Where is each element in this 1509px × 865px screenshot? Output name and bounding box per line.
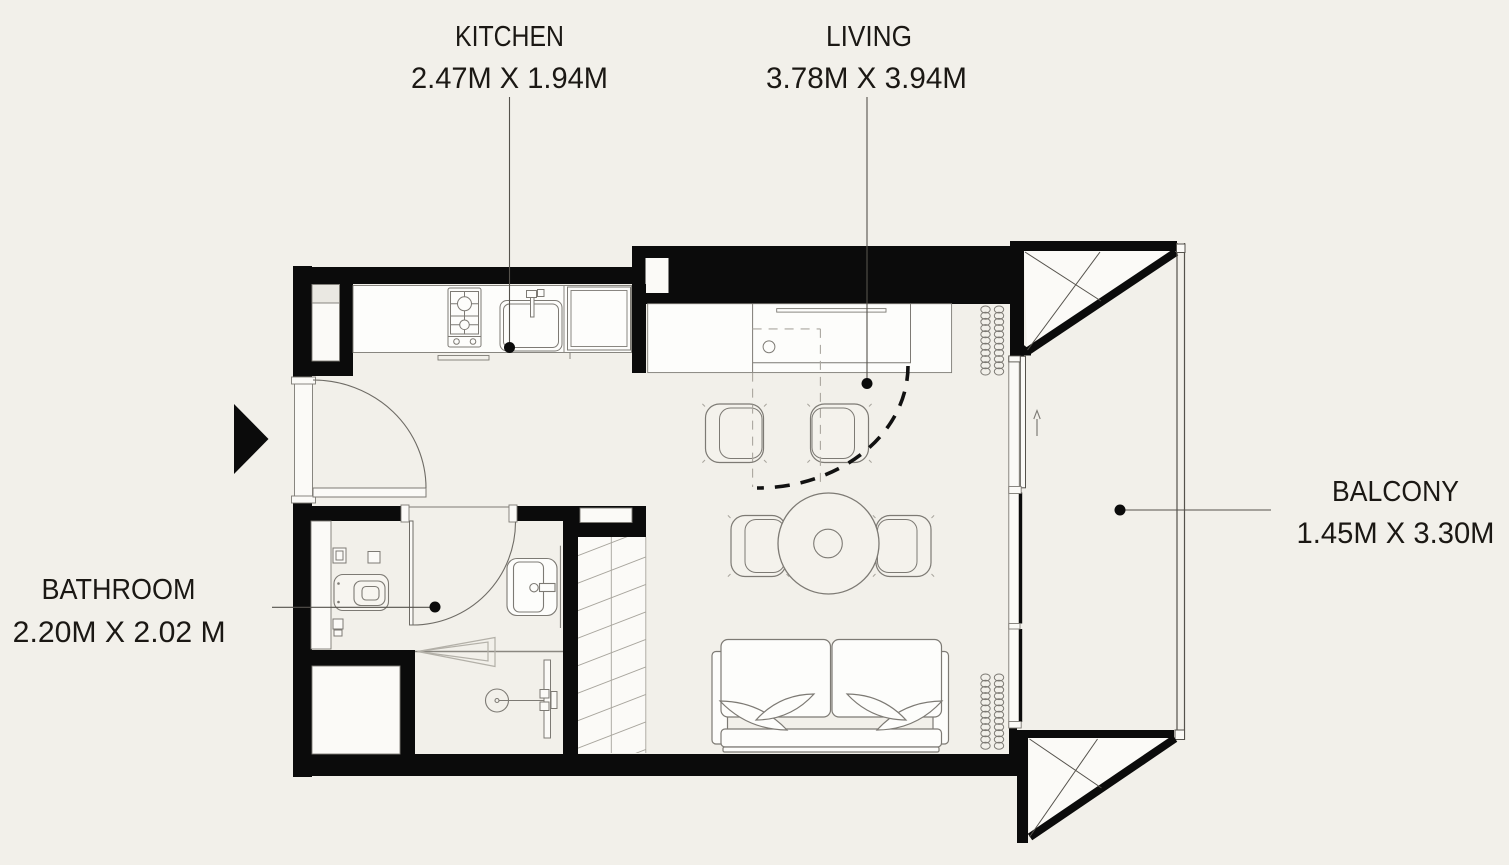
svg-text:BATHROOM: BATHROOM [42, 574, 196, 606]
svg-text:3.78M X 3.94M: 3.78M X 3.94M [766, 62, 967, 95]
svg-text:KITCHEN: KITCHEN [455, 21, 564, 53]
svg-text:LIVING: LIVING [826, 21, 912, 53]
svg-text:2.47M X 1.94M: 2.47M X 1.94M [411, 62, 608, 95]
svg-text:BALCONY: BALCONY [1332, 476, 1459, 508]
svg-text:1.45M X 3.30M: 1.45M X 3.30M [1297, 517, 1495, 550]
svg-text:2.20M X 2.02 M: 2.20M X 2.02 M [13, 616, 226, 649]
